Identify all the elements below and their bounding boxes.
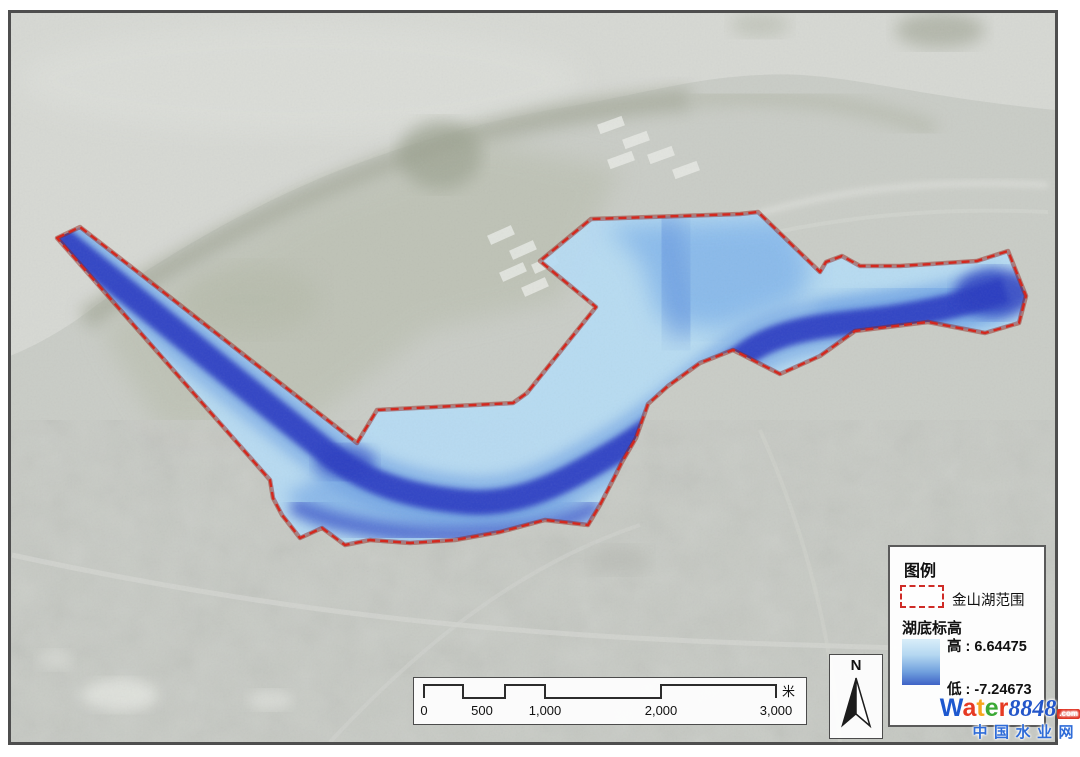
north-label: N: [830, 658, 882, 674]
scale-unit-label: 米: [782, 681, 795, 700]
scale-tick-label: 2,000: [645, 703, 678, 718]
scale-tick-label: 3,000: [760, 703, 793, 718]
high-prefix: 高 :: [947, 639, 970, 655]
legend-box: 图例 金山湖范围 湖底标高 高 :6.64475 低 :-7.24673: [888, 545, 1046, 727]
north-arrow-icon: [831, 674, 881, 732]
lake-boundary-symbol: [900, 585, 944, 608]
legend-title: 图例: [904, 557, 936, 581]
legend-low-value: 低 :-7.24673: [947, 678, 1032, 699]
low-value: -7.24673: [974, 682, 1031, 698]
low-prefix: 低 :: [947, 682, 970, 698]
elevation-gradient-swatch: [902, 639, 940, 685]
high-value: 6.64475: [974, 639, 1026, 655]
legend-high-value: 高 :6.64475: [947, 635, 1027, 656]
scale-tick-label: 500: [471, 703, 493, 718]
scale-tick-label: 1,000: [529, 703, 562, 718]
scale-tick-label: 0: [420, 703, 427, 718]
scale-bar: 0 500 1,000 2,000 3,000 米: [413, 677, 807, 725]
legend-item-label: 金山湖范围: [952, 589, 1025, 610]
north-arrow: N: [829, 654, 883, 739]
